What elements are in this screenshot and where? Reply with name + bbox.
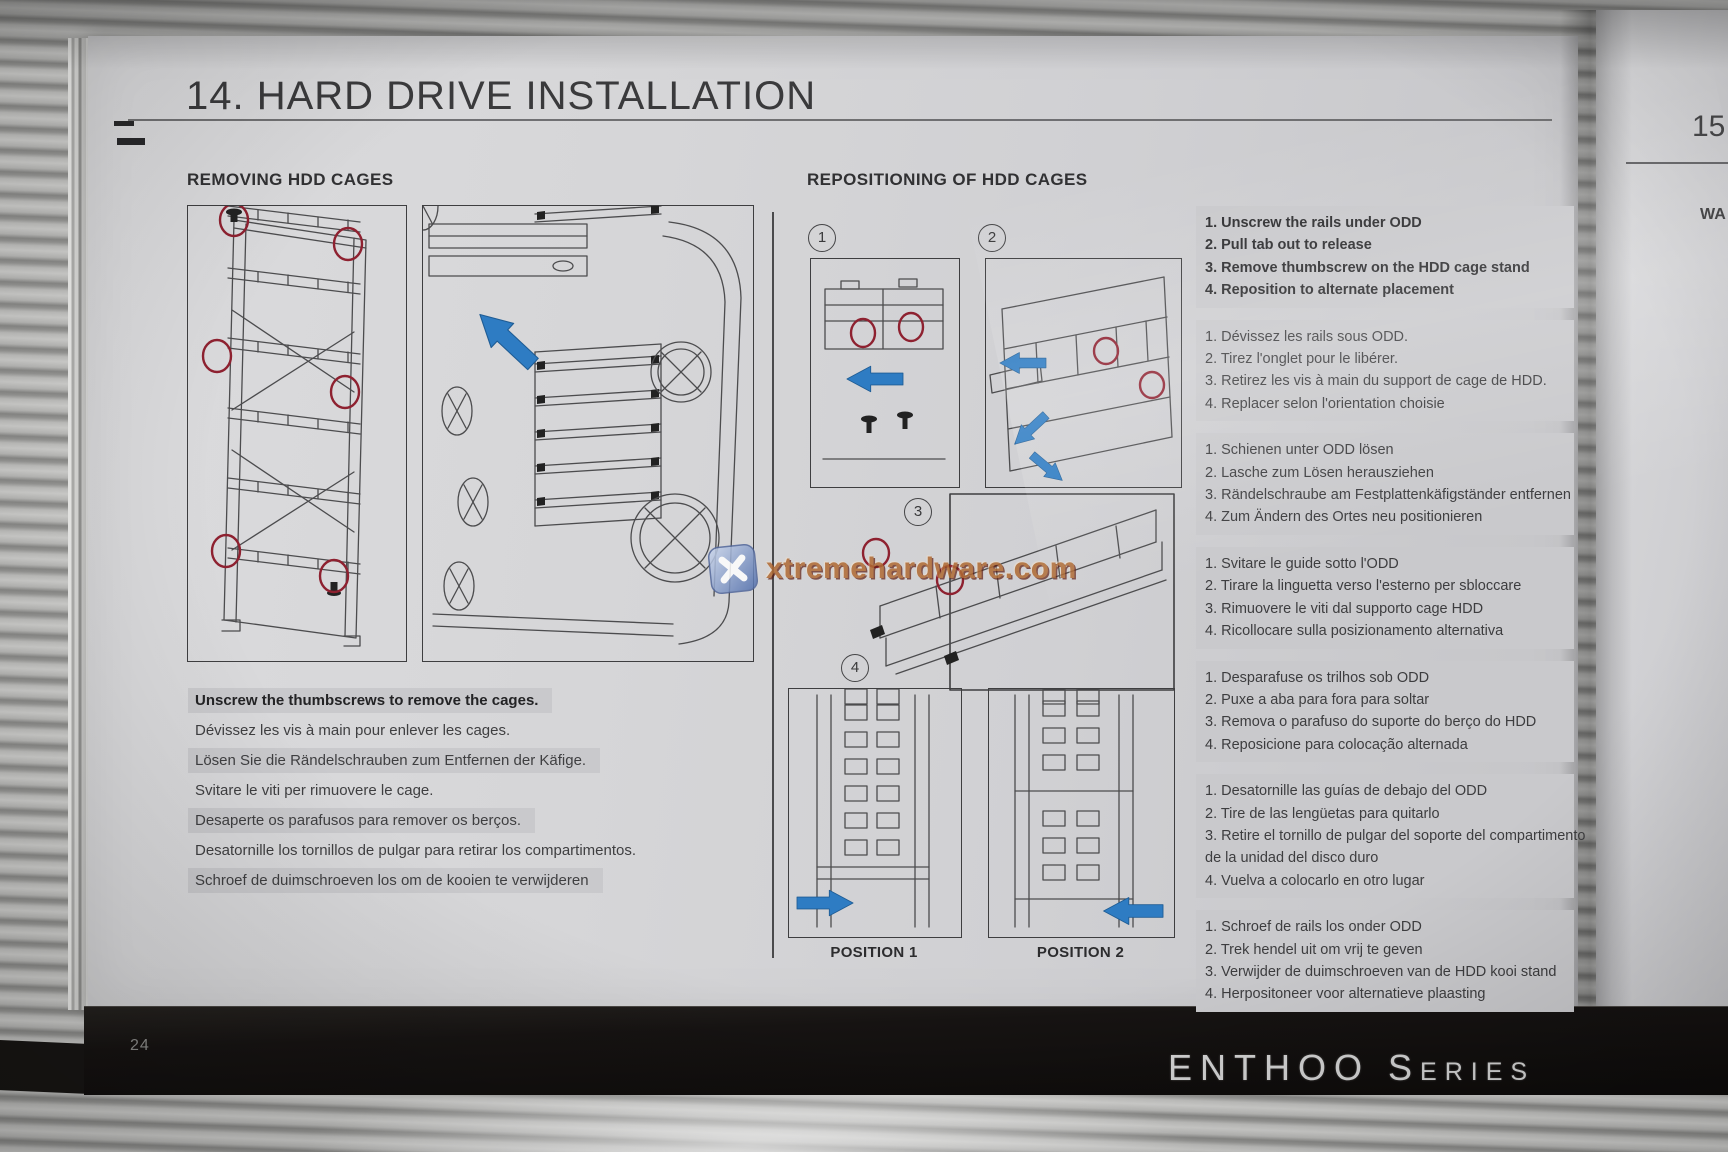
direction-arrow-icon [1008, 408, 1053, 452]
instruction-line: 1. Unscrew the rails under ODD [1205, 212, 1565, 234]
photographed-manual-page: 15 WA 24 ENTHOO Series 14. HARD DRIVE IN… [0, 0, 1728, 1152]
instruction-line: 4. Ricollocare sulla posizionamento alte… [1205, 620, 1565, 642]
position-1-label: POSITION 1 [788, 944, 960, 961]
instruction-line: 1. Desatornille las guías de debajo del … [1205, 780, 1565, 802]
page-content: 14. HARD DRIVE INSTALLATION REMOVING HDD… [0, 0, 1728, 1152]
instruction-line: 2. Tirez l'onglet pour le libérer. [1205, 348, 1565, 370]
instruction-line: 2. Puxe a aba para fora para soltar [1205, 689, 1565, 711]
caption-line: Schroef de duimschroeven los om de kooie… [188, 868, 603, 893]
instructions-dutch: 1. Schroef de rails los onder ODD2. Trek… [1196, 910, 1574, 1012]
instruction-line: 2. Tirare la linguetta verso l'esterno p… [1205, 575, 1565, 597]
rail-screw-marker-icon [899, 313, 923, 341]
caption-line: Desaperte os parafusos para remover os b… [188, 808, 535, 833]
direction-arrow-icon [847, 366, 903, 392]
thumbscrew-marker-icon [1094, 338, 1118, 364]
position-2-label: POSITION 2 [988, 944, 1173, 961]
watermark-text: xtremehardware.com [766, 552, 1077, 586]
caption-line: Desatornille los tornillos de pulgar par… [188, 838, 650, 863]
diagram-hdd-cage-tower [187, 205, 407, 662]
instruction-line: 4. Replacer selon l'orientation choisie [1205, 393, 1565, 415]
diagram-step2-pull-tab [985, 258, 1182, 488]
instruction-line: de la unidad del disco duro [1205, 847, 1565, 869]
instruction-line: 2. Trek hendel uit om vrij te geven [1205, 939, 1565, 961]
instruction-line: 4. Reposicione para colocação alternada [1205, 734, 1565, 756]
instruction-line: 1. Svitare le guide sotto l'ODD [1205, 553, 1565, 575]
heading-repositioning-hdd-cages: REPOSITIONING OF HDD CAGES [807, 170, 1088, 190]
instructions-german: 1. Schienen unter ODD lösen2. Lasche zum… [1196, 433, 1574, 535]
thumbscrew-marker-icon [331, 376, 359, 408]
instruction-line: 1. Desparafuse os trilhos sob ODD [1205, 667, 1565, 689]
instruction-line: 4. Vuelva a colocarlo en otro lugar [1205, 870, 1565, 892]
instructions-spanish: 1. Desatornille las guías de debajo del … [1196, 774, 1574, 898]
instruction-line: 2. Lasche zum Lösen herausziehen [1205, 462, 1565, 484]
instruction-line: 3. Rändelschraube am Festplattenkäfigstä… [1205, 484, 1565, 506]
instruction-line: 1. Schienen unter ODD lösen [1205, 439, 1565, 461]
chapter-title: 14. HARD DRIVE INSTALLATION [186, 74, 816, 119]
instructions-italian: 1. Svitare le guide sotto l'ODD2. Tirare… [1196, 547, 1574, 649]
diagram-step1-odd-rails [810, 258, 960, 488]
thumbscrew-marker-icon [203, 340, 231, 372]
instruction-line: 4. Reposition to alternate placement [1205, 279, 1565, 301]
instruction-line: 3. Remova o parafuso do suporte do berço… [1205, 711, 1565, 733]
instructions-portuguese: 1. Desparafuse os trilhos sob ODD2. Puxe… [1196, 661, 1574, 763]
diagram-case-interior [422, 205, 754, 662]
crop-mark [114, 121, 134, 126]
heading-removing-hdd-cages: REMOVING HDD CAGES [187, 170, 394, 190]
direction-arrow-icon [1026, 448, 1068, 487]
caption-line: Lösen Sie die Rändelschrauben zum Entfer… [188, 748, 600, 773]
direction-arrow-icon [469, 302, 545, 376]
caption-line: Svitare le viti per rimuovere le cage. [188, 778, 447, 803]
instruction-line: 4. Zum Ändern des Ortes neu positioniere… [1205, 506, 1565, 528]
title-rule [128, 119, 1552, 121]
instruction-line: 4. Herpositoneer voor alternatieve plaas… [1205, 983, 1565, 1005]
watermark: xtremehardware.com [708, 544, 1077, 594]
diagram-position-2 [988, 688, 1175, 938]
instruction-line: 2. Tire de las lengüetas para quitarlo [1205, 803, 1565, 825]
xtremehardware-logo-icon [706, 542, 761, 597]
step-number-badge: 2 [978, 224, 1006, 252]
step-number-badge: 1 [808, 224, 836, 252]
diagram-position-1 [788, 688, 962, 938]
thumbscrew-marker-icon [1140, 372, 1164, 398]
caption-line: Unscrew the thumbscrews to remove the ca… [188, 688, 552, 713]
instruction-line: 3. Remove thumbscrew on the HDD cage sta… [1205, 257, 1565, 279]
instruction-line: 1. Dévissez les rails sous ODD. [1205, 326, 1565, 348]
caption-line: Dévissez les vis à main pour enlever les… [188, 718, 524, 743]
instruction-column: 1. Unscrew the rails under ODD2. Pull ta… [1196, 206, 1574, 1024]
crop-mark [117, 138, 145, 145]
caption-block: Unscrew the thumbscrews to remove the ca… [188, 688, 808, 898]
instruction-line: 2. Pull tab out to release [1205, 234, 1565, 256]
instruction-line: 3. Rimuovere le viti dal supporto cage H… [1205, 598, 1565, 620]
instructions-french: 1. Dévissez les rails sous ODD.2. Tirez … [1196, 320, 1574, 422]
rail-screw-marker-icon [851, 319, 875, 347]
instructions-english: 1. Unscrew the rails under ODD2. Pull ta… [1196, 206, 1574, 308]
instruction-line: 1. Schroef de rails los onder ODD [1205, 916, 1565, 938]
instruction-line: 3. Verwijder de duimschroeven van de HDD… [1205, 961, 1565, 983]
instruction-line: 3. Retirez les vis à main du support de … [1205, 370, 1565, 392]
instruction-line: 3. Retire el tornillo de pulgar del sopo… [1205, 825, 1565, 847]
